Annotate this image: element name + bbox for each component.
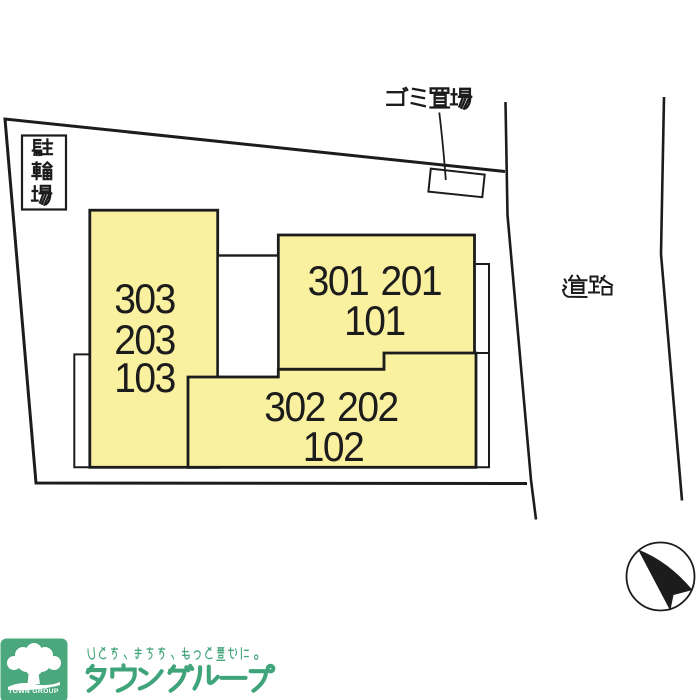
svg-text:101: 101 — [344, 297, 405, 345]
svg-text:TOWN GROUP: TOWN GROUP — [8, 688, 59, 695]
svg-text:103: 103 — [114, 354, 175, 402]
svg-text:102: 102 — [303, 423, 364, 471]
